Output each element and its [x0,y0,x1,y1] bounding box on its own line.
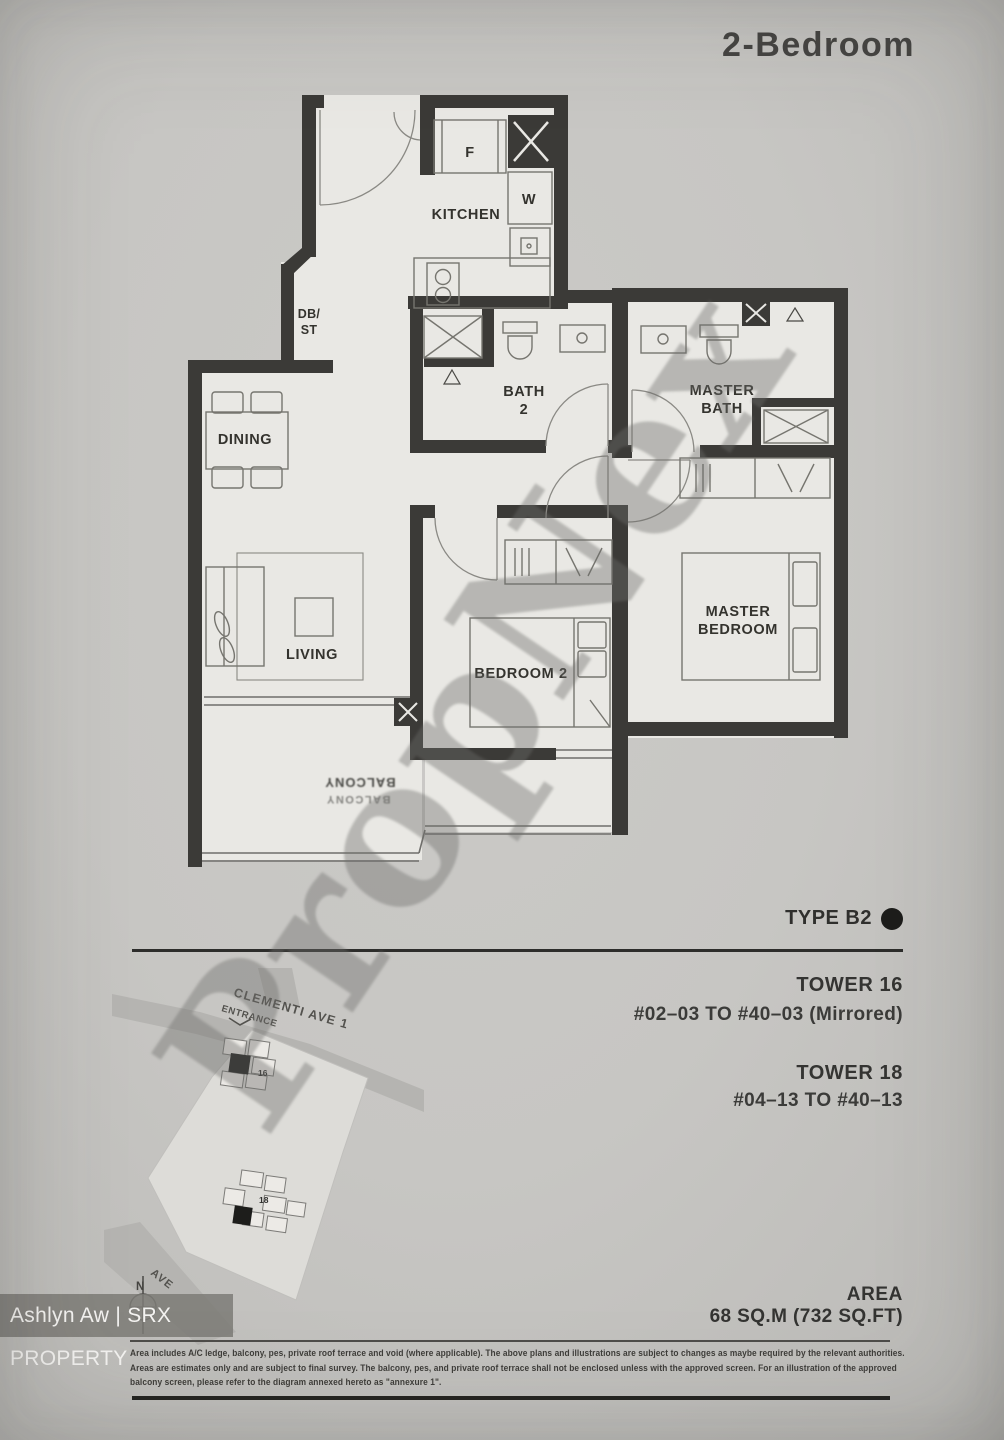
dbst-label-line2: ST [301,323,318,337]
washer-label: W [522,192,536,208]
area-label: AREA [847,1284,903,1306]
type-row: TYPE B2 [785,907,903,930]
tower16-number: 16 [258,1068,268,1078]
living-label: LIVING [286,647,338,663]
bath2-label-line1: BATH [503,384,545,400]
type-b2-dot-icon [881,908,903,930]
master-bath-label-line1: MASTER [690,383,755,399]
master-bedroom-label-line1: MASTER [706,604,771,620]
tower18-unit-marker [232,1205,252,1225]
disclaimer-top-rule [130,1340,890,1342]
tower16-units: #02–03 TO #40–03 (Mirrored) [634,1004,903,1026]
fridge-label: F [465,145,474,161]
tower18-number: 18 [259,1195,269,1205]
section-divider [132,949,903,952]
agent-watermark-bar: Ashlyn Aw | SRX PROPERTY [0,1294,233,1337]
disclaimer: Area includes A/C ledge, balcony, pes, p… [130,1347,896,1391]
kitchen-shaft-icon [508,115,554,168]
disclaimer-line: Area includes A/C ledge, balcony, pes, p… [130,1347,804,1362]
balcony-label-ghost: BALCONY [326,793,391,805]
disclaimer-line: Areas are estimates only and are subject… [130,1362,804,1377]
tower18-units: #04–13 TO #40–13 [733,1090,903,1112]
floorplan-drawing: KITCHEN F W DB/ ST DINING LIVING BATH 2 … [0,0,1004,1440]
disclaimer-bottom-rule [132,1396,890,1400]
area-value: 68 SQ.M (732 SQ.FT) [710,1306,903,1328]
master-bedroom-label-line2: BEDROOM [698,622,778,638]
disclaimer-line: balcony screen, please refer to the diag… [130,1376,804,1391]
master-bath-label-line2: BATH [701,401,743,417]
north-label: N [136,1281,144,1293]
page-title: 2-Bedroom [722,26,915,65]
tower18-name: TOWER 18 [796,1062,903,1085]
balcony-junction-icon [394,698,422,726]
floorplan-page: 2-Bedroom [0,0,1004,1440]
bedroom2-label: BEDROOM 2 [474,666,567,682]
dining-label: DINING [218,432,272,448]
type-label: TYPE B2 [785,907,872,930]
tower16-unit-marker [228,1053,250,1075]
balcony-label: BALCONY [324,775,395,790]
bath2-label-line2: 2 [520,402,529,418]
tower16-name: TOWER 16 [796,974,903,997]
kitchen-label: KITCHEN [432,207,501,223]
floor-fill [188,95,848,860]
site-map: CLEMENTI AVE 1 ENTRANCE AVE 16 [104,968,424,1345]
dbst-label-line1: DB/ [298,307,321,321]
masterbath-shaft-icon [742,300,770,326]
